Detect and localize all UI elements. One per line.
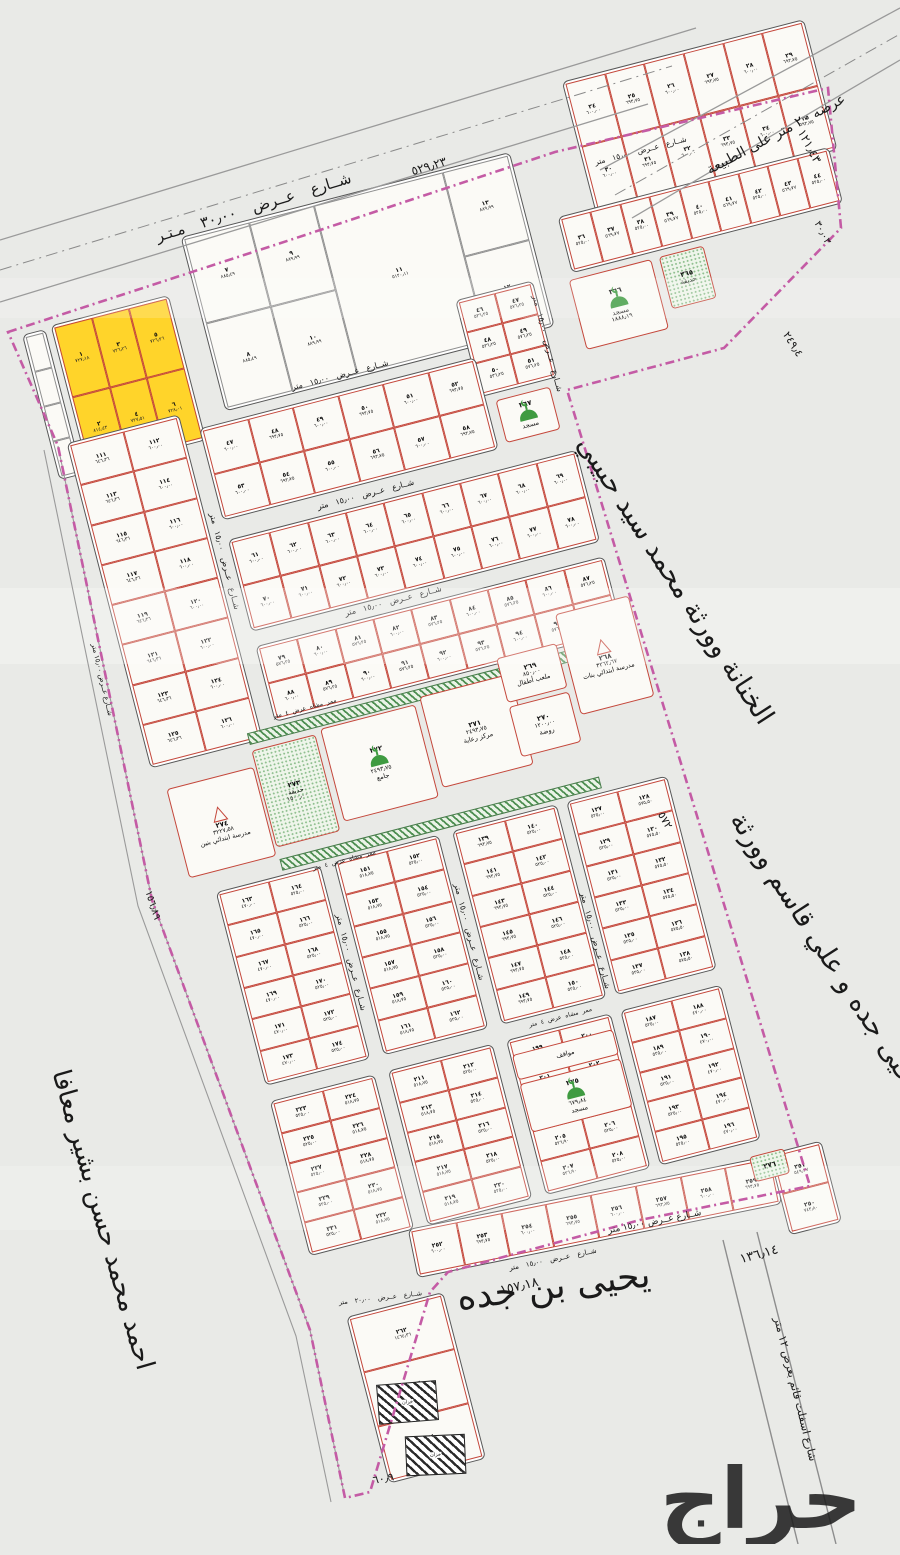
measure-156: ١٥٦٫٨٩ — [142, 889, 162, 921]
facility-label: روضة — [539, 726, 556, 737]
facility-label: مواقف — [556, 1049, 576, 1061]
plot-cell — [44, 402, 70, 441]
block-223-232: ٢٢٣٥٢٥٫٠٠٢٢٤٥١٨٫٧٥٢٢٥٥٢٥٫٠٠٢٢٦٥١٨٫٧٥٢٢٧٥… — [270, 1074, 415, 1256]
haraj-watermark: حراج — [660, 1450, 862, 1544]
mosque-366-site: ٣٦٦ مسجد ١٨٨٨٫١٩ — [569, 259, 669, 350]
water-tank-hatch: خزان — [405, 1434, 467, 1477]
kindergarten-site: ٢٧٠ ١٢٠٠٫٠٠ روضة — [509, 691, 582, 757]
subdivision-grid: ١٧٢٧٫١٨٣٧٢٦٫٢٦٥٧٢٦٫٢٦٢٨١٤٫٤٣٤٧٢٧٫٥١٦٧٢٨٫… — [0, 33, 900, 1555]
facility-label: حديقة — [680, 276, 697, 287]
subdivision-map-page: { "map": { "street30": "شــارع عــرض ٣٠٫… — [0, 0, 900, 1544]
owner-name-left: احمد محمد حسن بشير معافا — [45, 1066, 160, 1373]
tank-label: خزان — [429, 1452, 442, 1459]
plot-cell — [26, 333, 52, 372]
mosque-367-site: ٣٦٧ مسجد — [495, 386, 560, 443]
facility-label: ملعب أطفال — [516, 672, 551, 688]
facility-label: مسجد — [522, 420, 540, 431]
green-plot-365: ٣٦٥ حديقة — [659, 246, 717, 310]
plot-cell — [35, 367, 61, 406]
tank-label: خزان — [401, 1399, 414, 1406]
water-tank-hatch: خزان — [376, 1380, 439, 1425]
facility-label: مسجد — [571, 1104, 589, 1115]
facility-number: ٢٧٦ — [762, 1160, 776, 1171]
block-211-220: ٢١١٥١٨٫٧٥٢١٢٥٢٥٫٠٠٢١٣٥١٨٫٧٥٢١٤٥٢٥٫٠٠٢١٥٥… — [388, 1044, 533, 1226]
facility-label: جامع — [376, 772, 390, 782]
